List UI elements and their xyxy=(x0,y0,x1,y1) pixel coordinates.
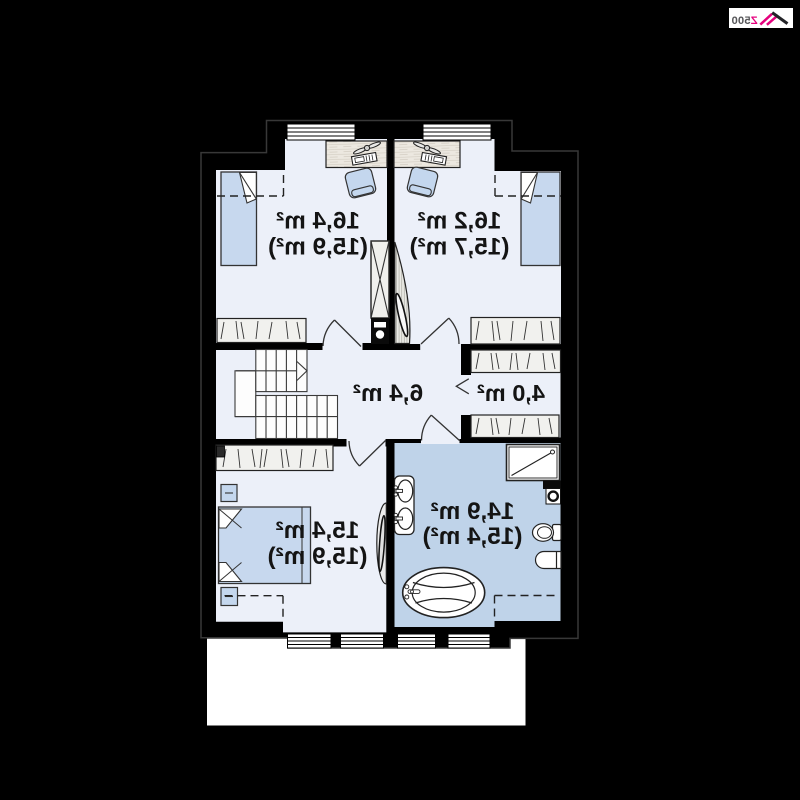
svg-text:(15,4 m²): (15,4 m²) xyxy=(423,523,523,550)
svg-text:(15,9 m²): (15,9 m²) xyxy=(268,543,368,570)
svg-text:16,4 m²: 16,4 m² xyxy=(276,208,360,235)
svg-text:15,4 m²: 15,4 m² xyxy=(276,517,360,544)
svg-text:(15,7 m²): (15,7 m²) xyxy=(410,234,510,261)
svg-text:14,9 m²: 14,9 m² xyxy=(431,498,515,525)
svg-text:4,0 m²: 4,0 m² xyxy=(477,380,545,406)
svg-text:6,4 m²: 6,4 m² xyxy=(353,380,423,407)
svg-text:Z500: Z500 xyxy=(731,15,757,27)
svg-text:(15,9 m²): (15,9 m²) xyxy=(268,234,368,261)
svg-text:16,2 m²: 16,2 m² xyxy=(418,208,502,235)
